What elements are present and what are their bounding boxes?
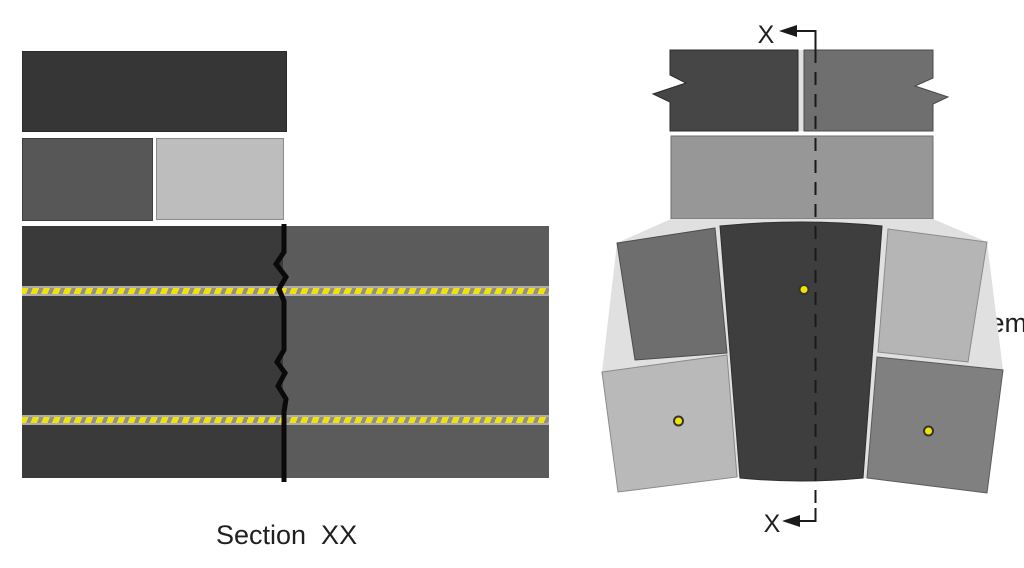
arrowhead-top-icon <box>779 25 797 37</box>
diagram-canvas: Section XX Cem Flex X X <box>0 0 1024 568</box>
elevation-view: X X <box>585 8 1024 560</box>
section-title: Section XX <box>216 520 357 551</box>
cemflex-marker <box>800 285 809 294</box>
cemflex-marker <box>924 427 933 436</box>
section-mark-top-label: X <box>758 21 775 49</box>
crack-line <box>255 222 315 484</box>
elev-brick-top-right <box>804 50 948 131</box>
elev-brick-bottom-left <box>602 355 737 492</box>
arrowhead-bottom-icon <box>782 515 800 527</box>
elev-brick-keystone <box>720 222 882 481</box>
wall-block-left-half <box>22 226 283 478</box>
brick-second-course-right <box>156 138 284 220</box>
elev-brick-mid-left <box>617 228 727 360</box>
elev-brick-top-left <box>653 50 798 131</box>
cemflex-marker <box>674 417 683 426</box>
elev-brick-bottom-right <box>867 357 1003 493</box>
section-view: Section XX <box>0 0 570 568</box>
elev-brick-mid-right <box>878 229 987 362</box>
section-mark-bottom-label: X <box>764 510 781 538</box>
elev-brick-second-course <box>671 136 933 219</box>
crack-polyline <box>276 224 286 482</box>
brick-second-course-left <box>22 138 153 221</box>
brick-top-course <box>22 51 287 132</box>
